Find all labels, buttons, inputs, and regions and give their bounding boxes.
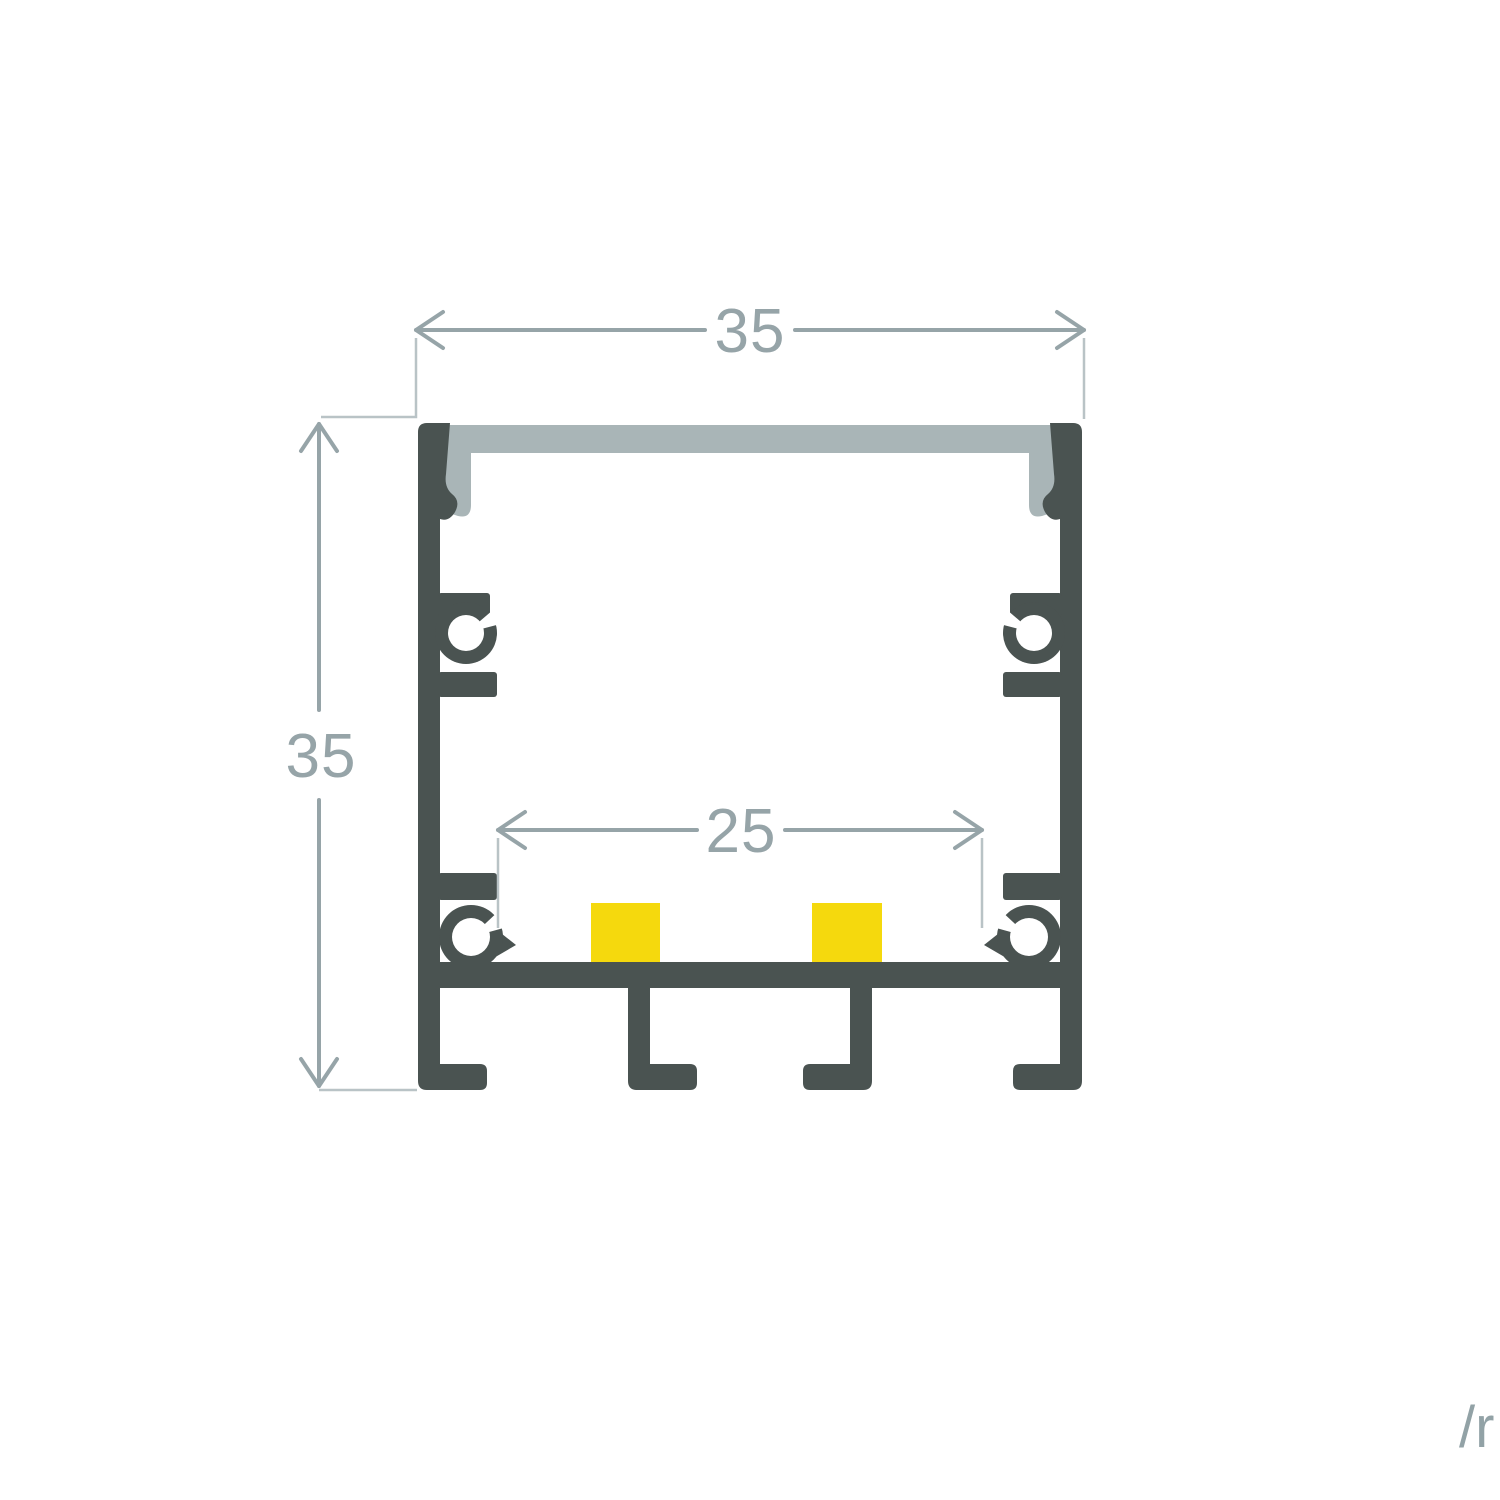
profile-left-half bbox=[418, 423, 751, 1090]
diffuser-cover bbox=[435, 425, 1065, 517]
dimension-inner-label: 25 bbox=[706, 797, 777, 866]
diagram-canvas: 35 35 25 /r bbox=[0, 0, 1500, 1500]
dimension-top-width: 35 bbox=[321, 297, 1084, 419]
profile-right-half bbox=[749, 423, 1082, 1090]
watermark-text: /r bbox=[1459, 1395, 1494, 1460]
profile-cross-section-drawing: 35 35 25 /r bbox=[0, 0, 1500, 1500]
led-chip-right bbox=[812, 903, 882, 962]
profile-body bbox=[418, 423, 1082, 1090]
dimension-left-label: 35 bbox=[286, 722, 357, 791]
led-chip-left bbox=[591, 903, 660, 962]
dimension-top-label: 35 bbox=[715, 297, 786, 366]
dimension-left-height: 35 bbox=[286, 424, 417, 1090]
dimension-inner-width: 25 bbox=[498, 797, 982, 928]
